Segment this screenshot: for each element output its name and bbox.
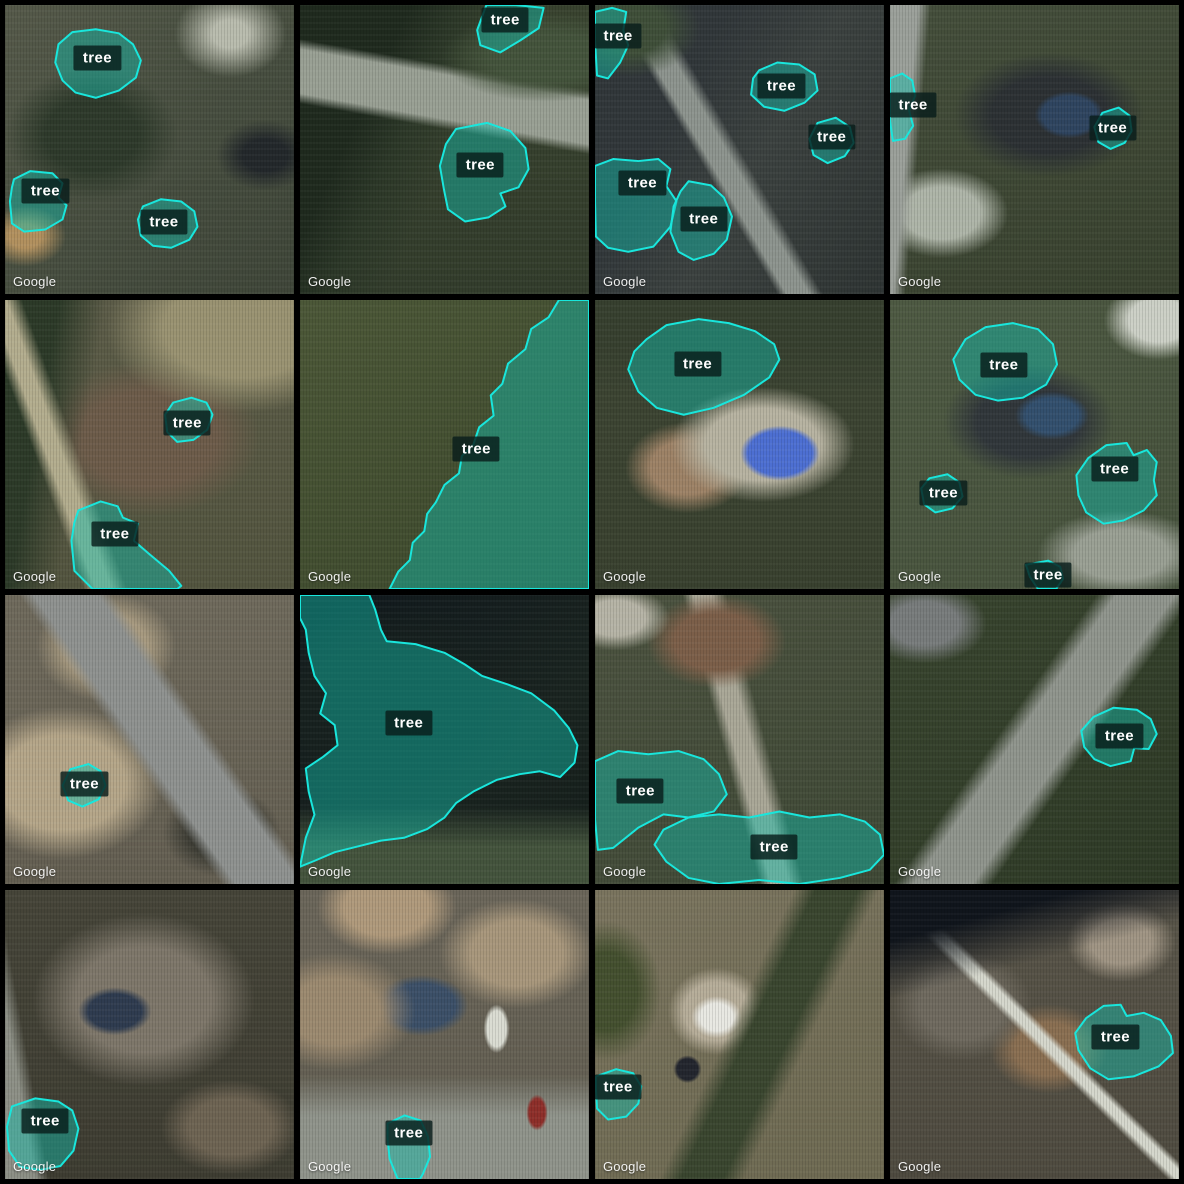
tree-label: tree	[61, 772, 108, 797]
tree-label: tree	[680, 207, 727, 232]
annotation-overlay	[5, 300, 294, 589]
google-watermark: Google	[898, 1159, 941, 1174]
google-watermark: Google	[898, 569, 941, 584]
tree-label: tree	[22, 1109, 69, 1134]
tree-label: tree	[91, 521, 138, 546]
tree-label: tree	[385, 711, 432, 736]
annotation-overlay	[300, 5, 589, 294]
tree-label: tree	[1092, 1025, 1139, 1050]
satellite-tile-r1c1: treetreetreeGoogle	[5, 5, 294, 294]
satellite-tile-r1c3: treetreetreetreetreeGoogle	[595, 5, 884, 294]
tree-label: tree	[482, 8, 529, 33]
google-watermark: Google	[603, 569, 646, 584]
google-watermark: Google	[898, 274, 941, 289]
annotation-overlay	[890, 300, 1179, 589]
annotation-overlay	[5, 890, 294, 1179]
tree-polygon	[1076, 443, 1156, 524]
tree-label: tree	[457, 153, 504, 178]
tree-label: tree	[453, 437, 500, 462]
google-watermark: Google	[308, 569, 351, 584]
satellite-tile-r1c2: treetreeGoogle	[300, 5, 589, 294]
annotation-overlay	[595, 300, 884, 589]
satellite-tile-r4c3: treeGoogle	[595, 890, 884, 1179]
tree-label: tree	[22, 179, 69, 204]
tree-label: tree	[758, 73, 805, 98]
image-grid: treetreetreeGoogletreetreeGoogletreetree…	[0, 0, 1184, 1184]
tree-label: tree	[1025, 562, 1072, 587]
annotation-overlay	[300, 890, 589, 1179]
satellite-tile-r3c4: treeGoogle	[890, 595, 1179, 884]
satellite-tile-r4c1: treeGoogle	[5, 890, 294, 1179]
google-watermark: Google	[13, 569, 56, 584]
annotation-overlay	[5, 595, 294, 884]
tree-label: tree	[890, 92, 937, 117]
annotation-overlay	[5, 5, 294, 294]
annotation-overlay	[595, 595, 884, 884]
satellite-tile-r2c4: treetreetreetreeGoogle	[890, 300, 1179, 589]
satellite-tile-r4c2: treeGoogle	[300, 890, 589, 1179]
tree-label: tree	[595, 1075, 642, 1100]
tree-label: tree	[619, 171, 666, 196]
google-watermark: Google	[603, 864, 646, 879]
satellite-tile-r2c1: treetreeGoogle	[5, 300, 294, 589]
satellite-tile-r1c4: treetreeGoogle	[890, 5, 1179, 294]
tree-label: tree	[617, 779, 664, 804]
tree-label: tree	[595, 24, 642, 49]
annotation-overlay	[300, 300, 589, 589]
tree-label: tree	[164, 410, 211, 435]
tree-label: tree	[674, 351, 721, 376]
tree-polygon	[300, 595, 577, 867]
satellite-tile-r3c3: treetreeGoogle	[595, 595, 884, 884]
annotation-overlay	[890, 5, 1179, 294]
google-watermark: Google	[603, 1159, 646, 1174]
google-watermark: Google	[13, 864, 56, 879]
satellite-tile-r2c2: treeGoogle	[300, 300, 589, 589]
tree-label: tree	[1089, 115, 1136, 140]
google-watermark: Google	[13, 1159, 56, 1174]
satellite-tile-r4c4: treeGoogle	[890, 890, 1179, 1179]
tree-label: tree	[385, 1120, 432, 1145]
google-watermark: Google	[308, 864, 351, 879]
satellite-tile-r3c2: treeGoogle	[300, 595, 589, 884]
tree-label: tree	[751, 834, 798, 859]
tree-label: tree	[74, 46, 121, 71]
annotation-overlay	[595, 890, 884, 1179]
google-watermark: Google	[308, 274, 351, 289]
satellite-tile-r2c3: treeGoogle	[595, 300, 884, 589]
tree-label: tree	[1096, 724, 1143, 749]
google-watermark: Google	[898, 864, 941, 879]
tree-label: tree	[980, 353, 1027, 378]
tree-label: tree	[808, 124, 855, 149]
tree-label: tree	[140, 209, 187, 234]
google-watermark: Google	[13, 274, 56, 289]
google-watermark: Google	[308, 1159, 351, 1174]
google-watermark: Google	[603, 274, 646, 289]
satellite-tile-r3c1: treeGoogle	[5, 595, 294, 884]
annotation-overlay	[300, 595, 589, 884]
tree-label: tree	[1091, 457, 1138, 482]
tree-label: tree	[920, 481, 967, 506]
